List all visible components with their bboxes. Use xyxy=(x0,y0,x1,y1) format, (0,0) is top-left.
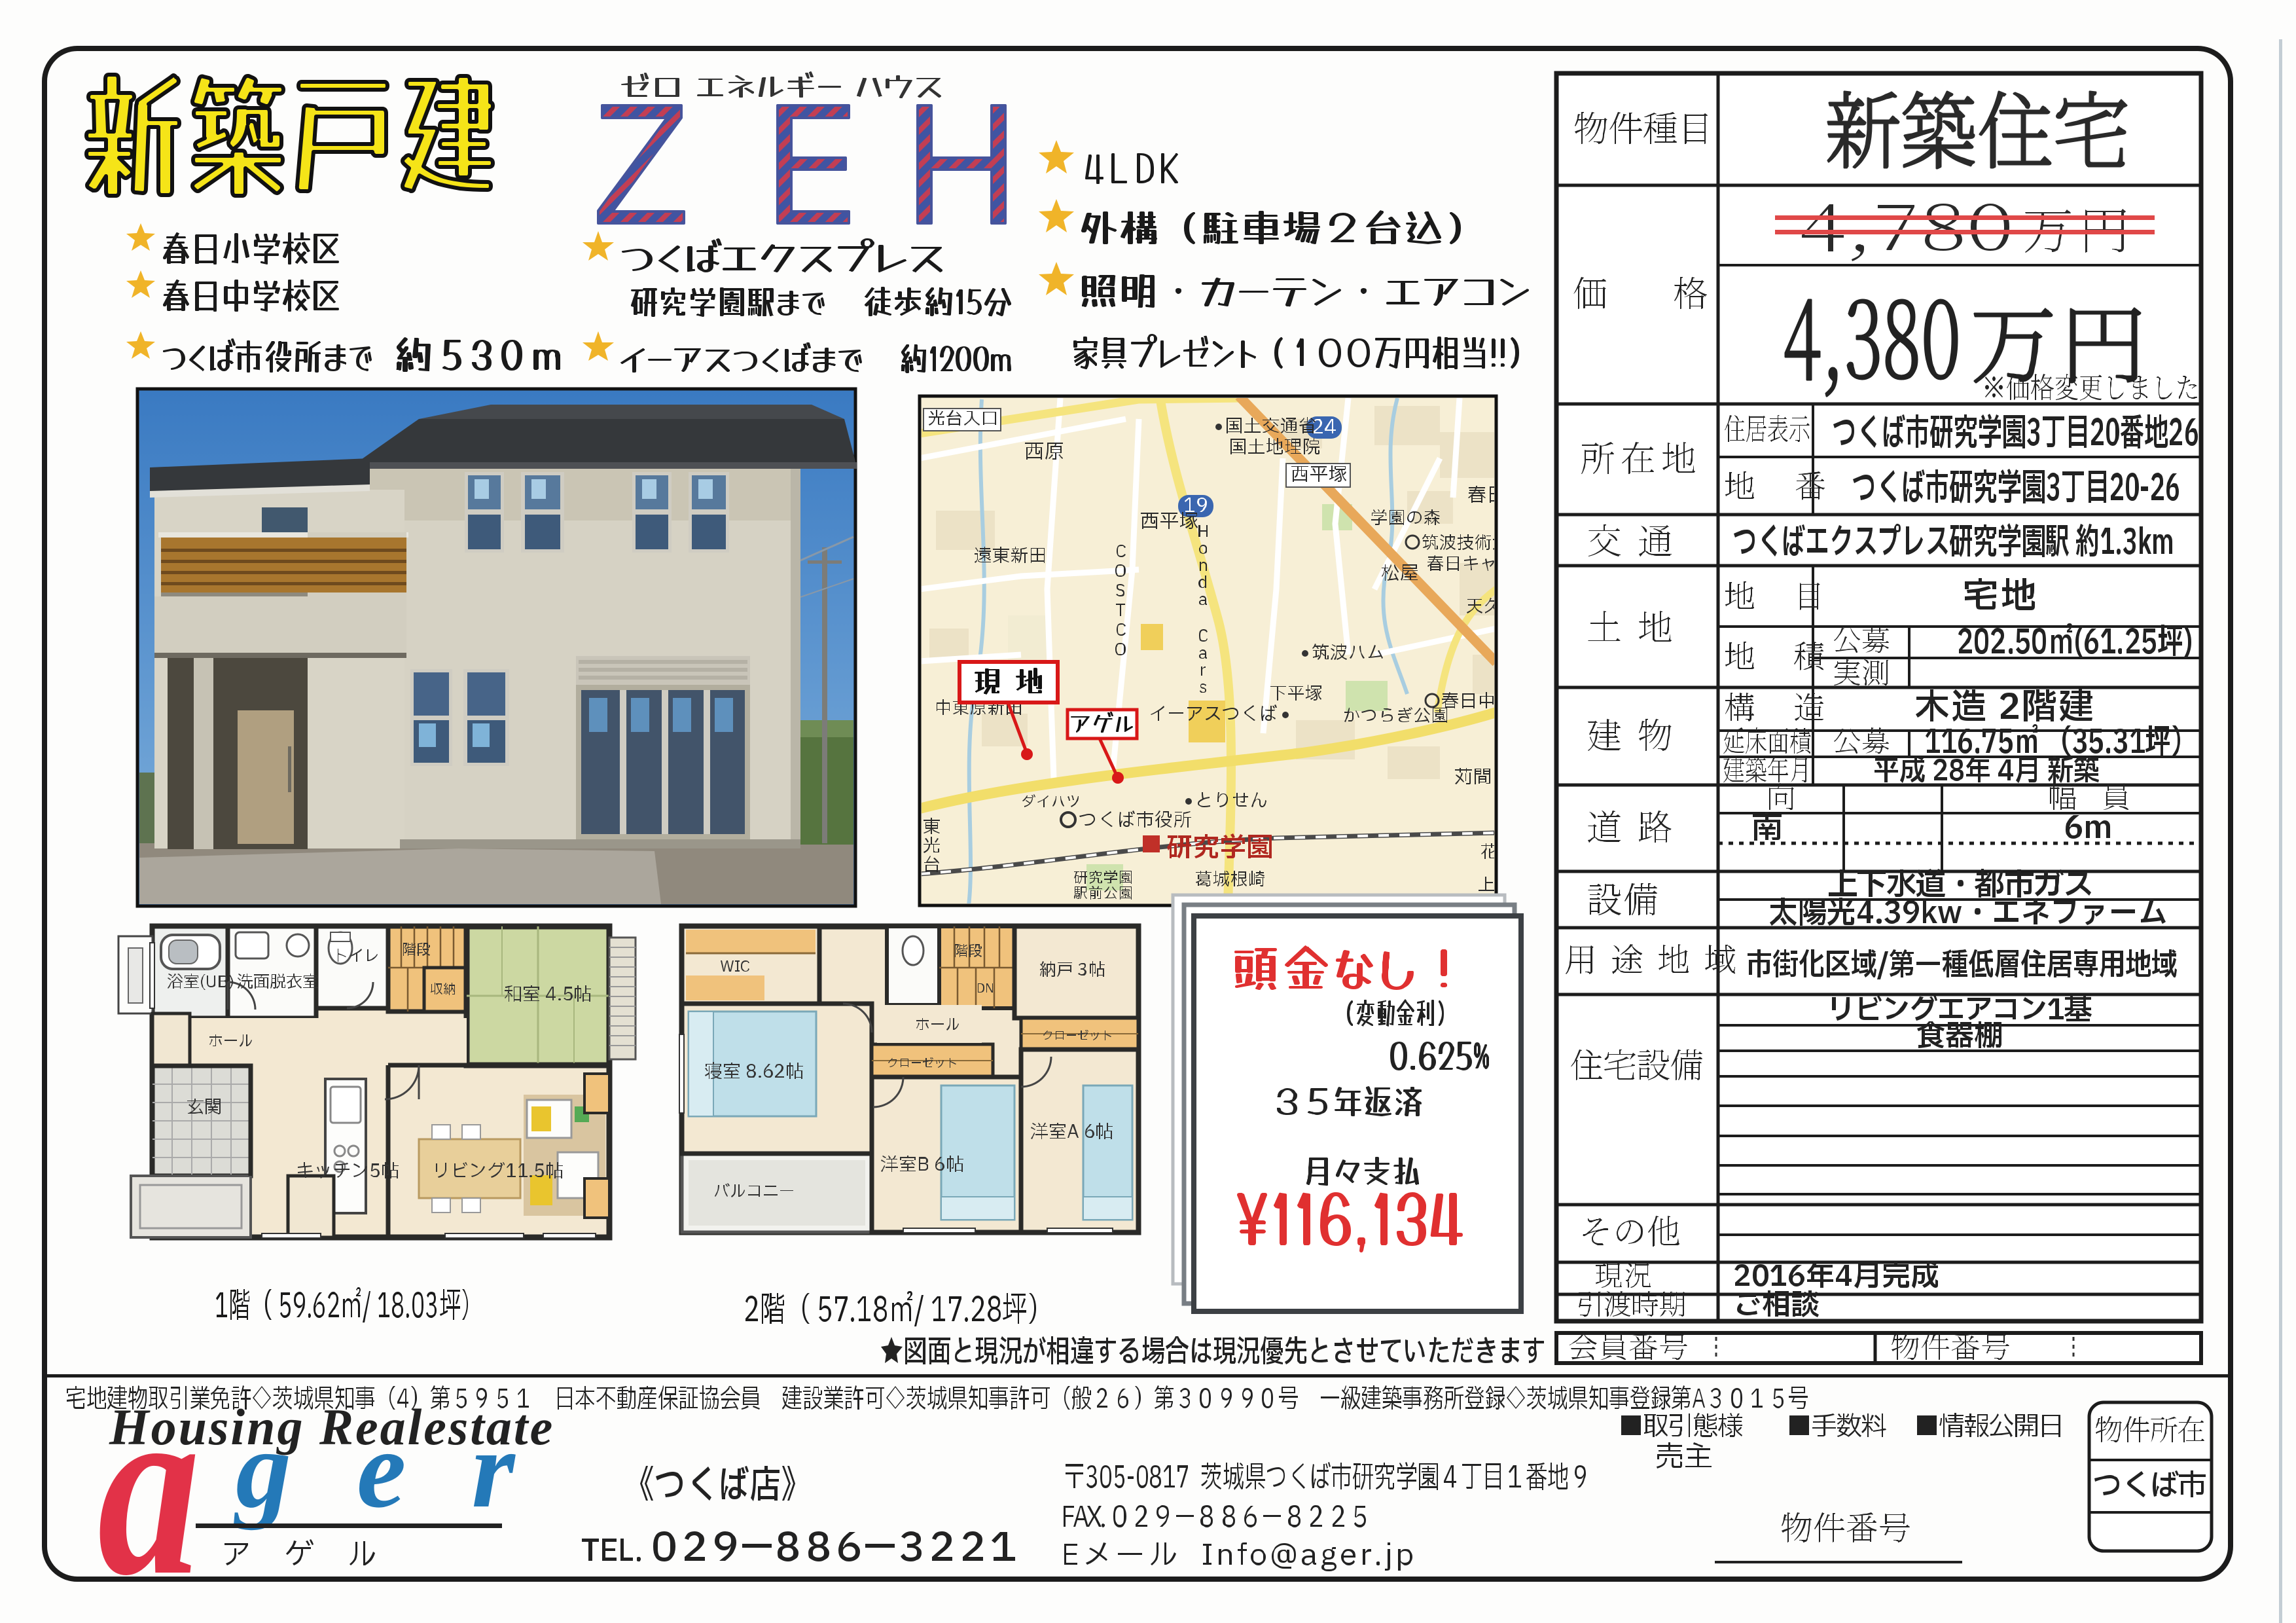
svg-text:ger: ger xyxy=(233,1408,581,1531)
svg-text:a: a xyxy=(98,1347,200,1623)
